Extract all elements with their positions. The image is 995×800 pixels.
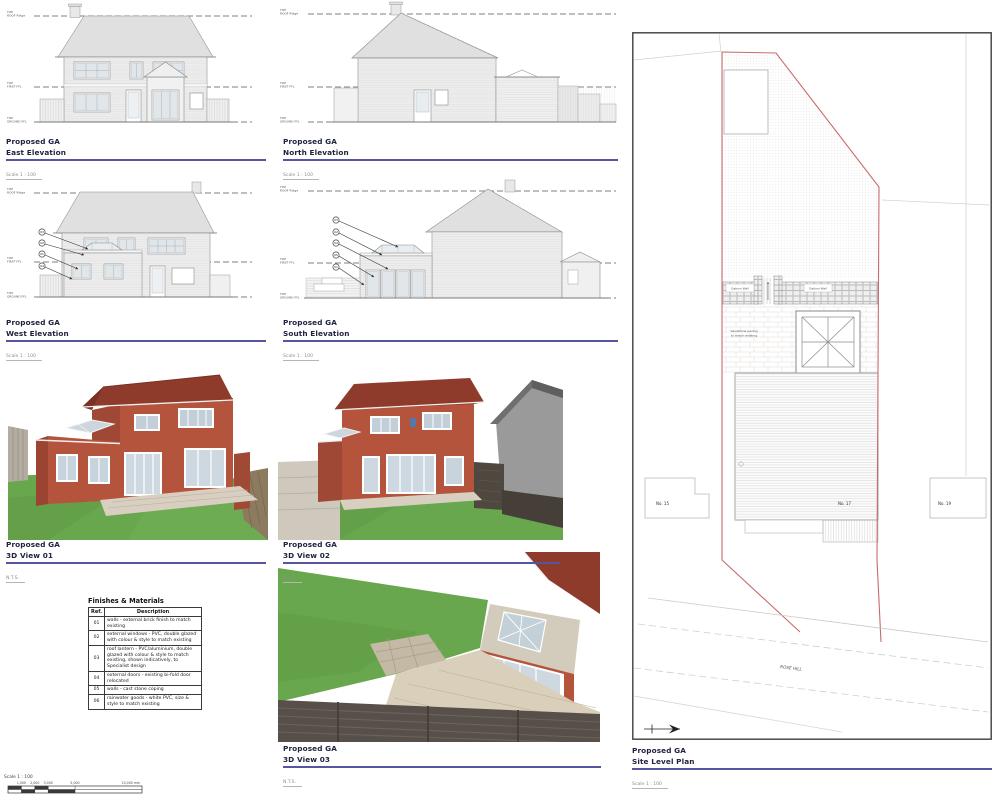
west-elevation-drawing: TOP ROOF Ridge TOP FIRST FFL TOP GROUND … <box>0 178 270 318</box>
house-north <box>332 2 616 122</box>
material-ref: 05 <box>89 686 105 695</box>
3d-view-01-render <box>8 358 268 540</box>
outbuilding <box>724 70 768 134</box>
finishes-materials-panel: Finishes & Materials Ref. Description 01… <box>88 597 202 710</box>
materials-table-title: Finishes & Materials <box>88 597 202 605</box>
house-no17-plan: No. 17 <box>735 373 878 542</box>
gabion-wall-label: Gabion Wall <box>809 286 827 290</box>
level-labels: TOP ROOF Ridge TOP FIRST FFL TOP GROUND … <box>6 187 27 299</box>
callout-number: 01 <box>334 265 338 269</box>
material-desc: external windows - PVC, double glazed wi… <box>105 631 202 645</box>
panel-subtitle: West Elevation <box>6 329 266 340</box>
panel-subtitle: East Elevation <box>6 148 266 159</box>
panel-scale: N.T.S. <box>6 576 25 583</box>
scale-tick-label: 5,000 <box>70 781 79 785</box>
title-underline <box>283 159 618 161</box>
panel-title: Proposed GA <box>632 746 992 757</box>
panel-title: Proposed GA <box>283 540 560 551</box>
material-ref: 04 <box>89 671 105 685</box>
panel-title: Proposed GA <box>283 137 618 148</box>
title-underline <box>283 766 601 768</box>
west-elevation-titleblock: Proposed GA West Elevation Scale 1 : 100 <box>6 318 266 361</box>
paving-label: Sandstone paving <box>731 329 758 333</box>
material-ref: 06 <box>89 695 105 709</box>
panel-scale: N.T.S. <box>283 576 302 583</box>
level-labels: TOP ROOF Ridge TOP FIRST FFL TOP GROUND … <box>279 8 300 124</box>
site-plan-titleblock: Proposed GA Site Level Plan Scale 1 : 10… <box>632 746 992 789</box>
house-south <box>304 180 608 298</box>
callout-number: 05 <box>334 253 338 257</box>
material-desc: walls - external brick finish to match e… <box>105 617 202 631</box>
view-02-titleblock: Proposed GA 3D View 02 N.T.S. <box>283 540 560 583</box>
level-first-label: FIRST FFL <box>7 260 22 264</box>
level-roof-label: ROOF Ridge <box>7 191 25 195</box>
panel-subtitle: 3D View 02 <box>283 551 560 562</box>
panel-title: Proposed GA <box>283 744 601 755</box>
title-underline <box>6 340 266 342</box>
panel-title: Proposed GA <box>6 318 266 329</box>
callout-number: 02 <box>40 241 44 245</box>
table-row: 05 walls - cast stone coping <box>89 686 202 695</box>
level-roof-label: ROOF Ridge <box>280 12 298 16</box>
east-elevation-titleblock: Proposed GA East Elevation Scale 1 : 100 <box>6 137 266 180</box>
level-ground-label: GROUND FFL <box>7 295 27 299</box>
north-elevation-titleblock: Proposed GA North Elevation Scale 1 : 10… <box>283 137 618 180</box>
scale-tick-label: 10,000 mm <box>122 781 140 785</box>
level-labels: TOP ROOF Ridge TOP FIRST FFL TOP GROUND … <box>279 185 300 300</box>
table-row: 02 external windows - PVC, double glazed… <box>89 631 202 645</box>
materials-col-ref: Ref. <box>89 608 105 617</box>
callout-number: 03 <box>40 230 44 234</box>
panel-scale: N.T.S. <box>283 780 302 787</box>
view-01-titleblock: Proposed GA 3D View 01 N.T.S. <box>6 540 266 583</box>
title-underline <box>283 562 560 564</box>
house-17-label: No. 17 <box>838 501 851 506</box>
material-ref: 01 <box>89 617 105 631</box>
material-ref: 03 <box>89 645 105 671</box>
south-elevation-titleblock: Proposed GA South Elevation Scale 1 : 10… <box>283 318 618 361</box>
panel-subtitle: North Elevation <box>283 148 618 159</box>
material-desc: roof lantern - PVC/aluminium, double gla… <box>105 645 202 671</box>
material-desc: rainwater goods - white PVC, size & styl… <box>105 695 202 709</box>
table-row: 04 external doors - existing bi-fold doo… <box>89 671 202 685</box>
panel-subtitle: South Elevation <box>283 329 618 340</box>
panel-subtitle: 3D View 01 <box>6 551 266 562</box>
level-labels: TOP ROOF Ridge TOP FIRST FFL TOP GROUND … <box>6 10 27 124</box>
panel-title: Proposed GA <box>6 540 266 551</box>
panel-scale: Scale 1 : 100 <box>283 173 319 180</box>
scale-tick-label: 2,000 <box>30 781 39 785</box>
title-underline <box>6 159 266 161</box>
panel-title: Proposed GA <box>283 318 618 329</box>
scale-tick-label: 3,000 <box>44 781 53 785</box>
3d-view-02-render <box>278 358 563 540</box>
panel-title: Proposed GA <box>6 137 266 148</box>
level-ground-label: GROUND FFL <box>7 120 27 124</box>
title-underline <box>283 340 618 342</box>
level-first-label: FIRST FFL <box>7 85 22 89</box>
graphic-scale-bar: Scale 1 : 100 1,000 2,000 3,000 5,000 10… <box>2 772 157 800</box>
callout-number: 04 <box>40 264 44 268</box>
title-underline <box>6 562 266 564</box>
title-underline <box>632 768 992 770</box>
south-elevation-drawing: TOP ROOF Ridge TOP FIRST FFL TOP GROUND … <box>278 178 620 318</box>
material-desc: external doors - existing bi-fold door r… <box>105 671 202 685</box>
material-ref: 02 <box>89 631 105 645</box>
site-level-plan-drawing: Gabion Wall Gabion Wall Sandstone paving… <box>632 32 992 740</box>
roof-lantern-plan <box>796 311 860 373</box>
callout-number: 01 <box>40 252 44 256</box>
table-row: 01 walls - external brick finish to matc… <box>89 617 202 631</box>
materials-col-desc: Description <box>105 608 202 617</box>
panel-scale: Scale 1 : 100 <box>6 173 42 180</box>
panel-subtitle: Site Level Plan <box>632 757 992 768</box>
level-roof-label: ROOF Ridge <box>7 14 25 18</box>
panel-scale: Scale 1 : 100 <box>6 354 42 361</box>
materials-table: Ref. Description 01 walls - external bri… <box>88 607 202 710</box>
house-west <box>38 182 232 297</box>
level-first-label: FIRST FFL <box>280 85 295 89</box>
house-east <box>38 4 232 122</box>
table-row: 06 rainwater goods - white PVC, size & s… <box>89 695 202 709</box>
table-row: 03 roof lantern - PVC/aluminium, double … <box>89 645 202 671</box>
material-desc: walls - cast stone coping <box>105 686 202 695</box>
callout-number: 02 <box>334 230 338 234</box>
panel-subtitle: 3D View 03 <box>283 755 601 766</box>
panel-scale: Scale 1 : 100 <box>632 782 668 789</box>
scale-bar-label: Scale 1 : 100 <box>4 774 33 780</box>
view-03-titleblock: Proposed GA 3D View 03 N.T.S. <box>283 744 601 787</box>
gabion-wall-label: Gabion Wall <box>731 286 749 290</box>
house-19-label: No. 19 <box>938 501 951 506</box>
level-ground-label: GROUND FFL <box>280 120 300 124</box>
house-15-label: No. 15 <box>656 501 669 506</box>
paving-label: to match existing <box>731 334 757 338</box>
callout-number: 03 <box>334 218 338 222</box>
level-roof-label: ROOF Ridge <box>280 189 298 193</box>
level-first-label: FIRST FFL <box>280 261 295 265</box>
panel-scale: Scale 1 : 100 <box>283 354 319 361</box>
level-ground-label: GROUND FFL <box>280 296 300 300</box>
scale-tick-label: 1,000 <box>17 781 26 785</box>
callout-number: 04 <box>334 241 338 245</box>
north-elevation-drawing: TOP ROOF Ridge TOP FIRST FFL TOP GROUND … <box>278 0 620 140</box>
east-elevation-drawing: TOP ROOF Ridge TOP FIRST FFL TOP GROUND … <box>0 0 270 140</box>
